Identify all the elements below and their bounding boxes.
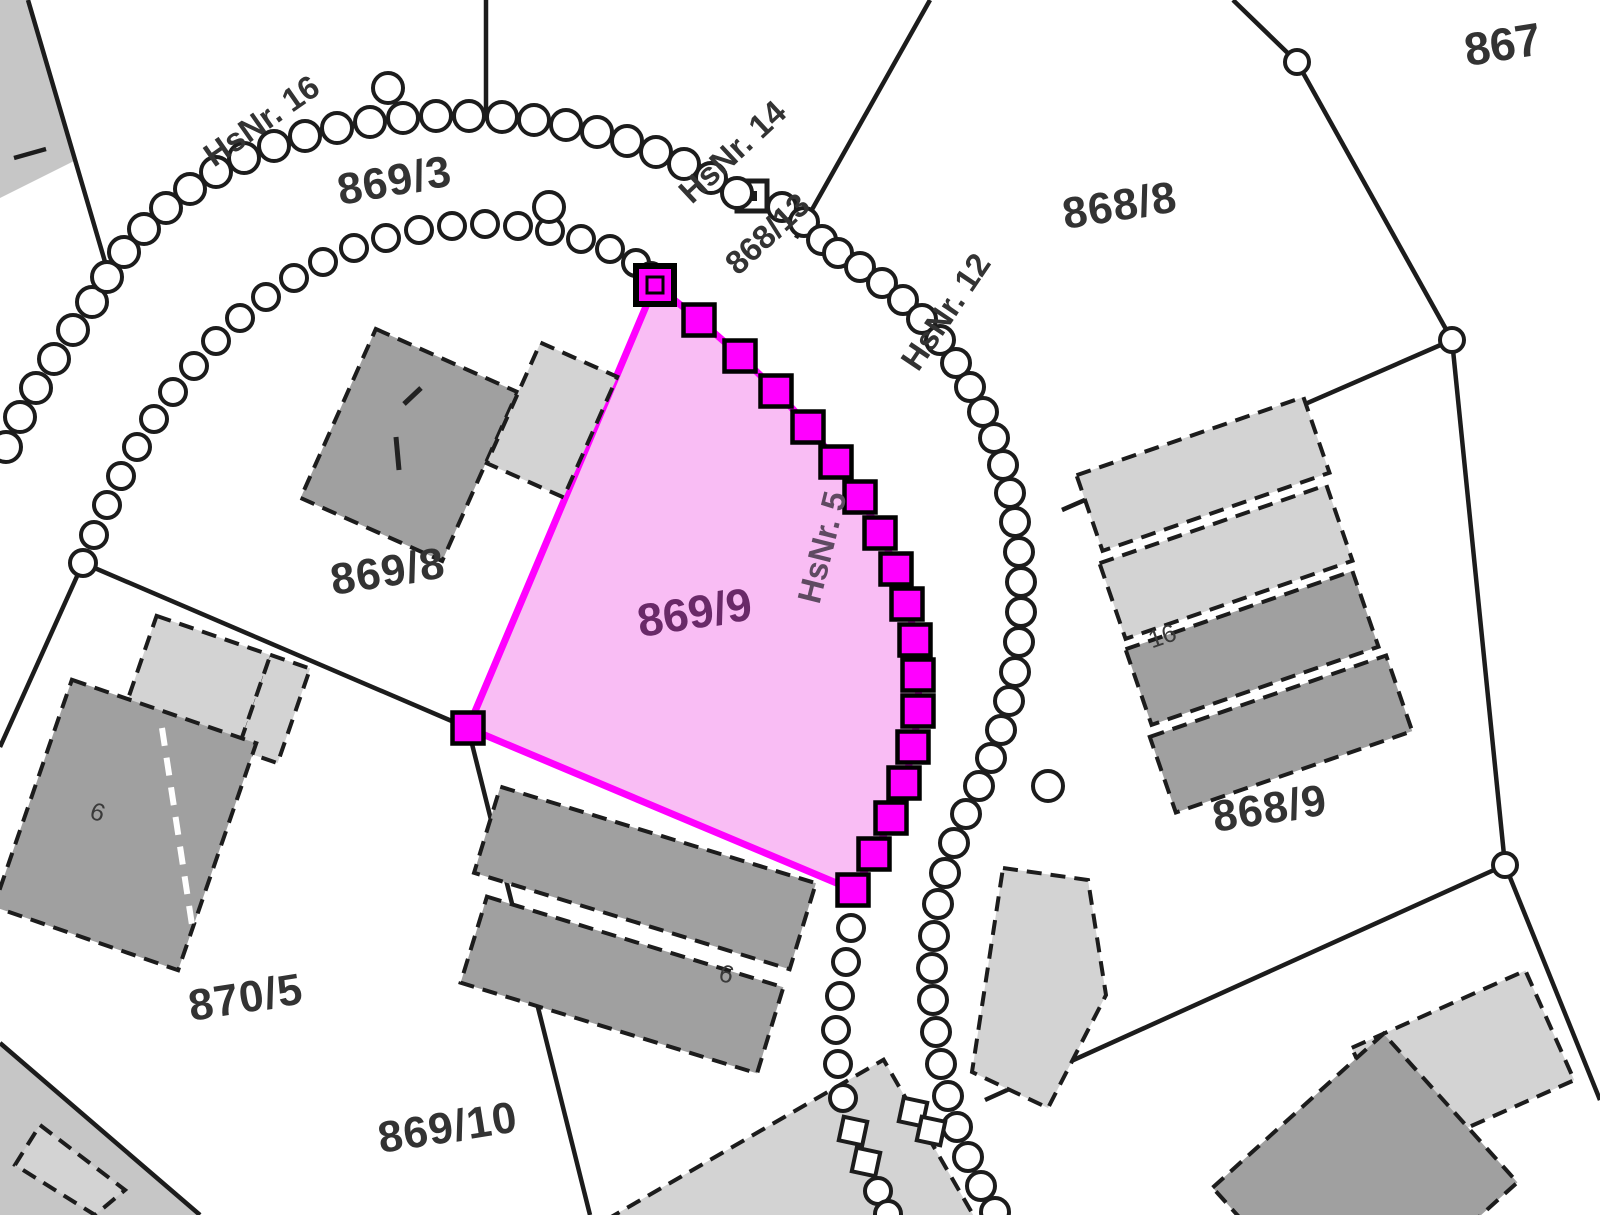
boundary-point-circle [373, 73, 403, 103]
boundary-point-circle [1033, 771, 1063, 801]
parcel-vertex-handle[interactable] [821, 447, 852, 478]
boundary-point-circle [875, 1201, 901, 1215]
corner-parcels [0, 0, 200, 1215]
boundary-point-circle [439, 213, 465, 239]
boundary-point-circle [487, 102, 517, 132]
boundary-point-circle [920, 922, 948, 950]
boundary-point-circle [838, 915, 864, 941]
boundary-point-square [852, 1148, 880, 1176]
parcel-vertex-handle[interactable] [892, 589, 923, 620]
boundary-point-circle [918, 954, 946, 982]
parcel-boundary-line [1297, 62, 1452, 340]
boundary-point-circle [70, 550, 96, 576]
parcel-vertex-handle[interactable] [838, 875, 869, 906]
boundary-point-circle [934, 1082, 962, 1110]
label-parcel-869-10: 869/10 [374, 1092, 521, 1162]
boundary-point-circle [833, 949, 859, 975]
parcel-vertex-handle[interactable] [761, 376, 792, 407]
boundary-point-circle [582, 117, 612, 147]
label-parcel-869-3: 869/3 [334, 147, 456, 215]
boundary-point-circle [519, 105, 549, 135]
boundary-point-circle [987, 716, 1015, 744]
label-parcel-870-5: 870/5 [185, 964, 306, 1030]
boundary-point-circle [980, 424, 1008, 452]
boundary-vertex-circle [1493, 853, 1517, 877]
boundary-point-circle [551, 110, 581, 140]
boundary-point-circle [981, 1198, 1009, 1215]
boundary-point-square [839, 1117, 867, 1145]
boundary-point-circle [931, 859, 959, 887]
boundary-point-circle [253, 284, 279, 310]
boundary-point-circle [406, 217, 432, 243]
boundary-point-circle [827, 983, 853, 1009]
boundary-point-circle [0, 432, 21, 462]
boundary-point-circle [722, 178, 752, 208]
label-parcel-868-8: 868/8 [1059, 172, 1180, 238]
map-viewport[interactable]: 869/3 867 868/8 868/13 869/8 869/9 868/9… [0, 0, 1600, 1215]
boundary-point-circle [919, 986, 947, 1014]
parcel-vertex-handle[interactable] [859, 839, 890, 870]
boundary-point-circle [1005, 628, 1033, 656]
parcel-boundary-line [1452, 340, 1505, 865]
parcel-vertex-handle[interactable] [903, 696, 934, 727]
parcel-vertex-handle[interactable] [725, 341, 756, 372]
label-parcel-869-8: 869/8 [327, 538, 448, 604]
boundary-point-circle [924, 890, 952, 918]
parcel-vertex-handle[interactable] [889, 768, 920, 799]
boundary-point-circle [597, 236, 623, 262]
boundary-point-circle [1005, 538, 1033, 566]
boundary-point-circle [108, 463, 134, 489]
parcel-vertex-handle-selected[interactable] [636, 266, 674, 304]
parcel-vertex-handle[interactable] [876, 803, 907, 834]
boundary-point-circle [58, 315, 88, 345]
boundary-point-circle [1007, 598, 1035, 626]
boundary-point-square [917, 1117, 945, 1145]
boundary-point-circle [989, 451, 1017, 479]
building [972, 868, 1106, 1108]
boundary-point-circle [830, 1085, 856, 1111]
boundary-point-circle [181, 353, 207, 379]
boundary-point-circle [825, 1051, 851, 1077]
parcel-vertex-handle[interactable] [865, 518, 896, 549]
parcel-vertex-handle[interactable] [903, 660, 934, 691]
boundary-point-circle [1001, 508, 1029, 536]
boundary-point-circle [94, 492, 120, 518]
boundary-point-circle [454, 101, 484, 131]
boundary-point-circle [965, 772, 993, 800]
boundary-point-circle [203, 328, 229, 354]
boundary-point-circle [1007, 568, 1035, 596]
cadastral-map-canvas[interactable]: 869/3 867 868/8 868/13 869/8 869/9 868/9… [0, 0, 1600, 1215]
boundary-point-circle [281, 265, 307, 291]
boundary-point-circle [355, 107, 385, 137]
boundary-point-circle [505, 213, 531, 239]
boundary-point-circle [995, 687, 1023, 715]
boundary-point-circle [1001, 658, 1029, 686]
boundary-vertex-circle [1285, 50, 1309, 74]
boundary-point-circle [124, 434, 150, 460]
parcel-vertex-handle[interactable] [881, 554, 912, 585]
boundary-point-circle [922, 1018, 950, 1046]
parcel-vertex-handle[interactable] [898, 732, 929, 763]
boundary-point-circle [21, 373, 51, 403]
boundary-point-circle [996, 479, 1024, 507]
boundary-point-circle [141, 406, 167, 432]
boundary-point-circle [39, 344, 69, 374]
building [301, 329, 518, 561]
boundary-point-circle [388, 103, 418, 133]
boundary-point-circle [641, 137, 671, 167]
boundary-vertex-circle [1440, 328, 1464, 352]
boundary-point-circle [954, 1143, 982, 1171]
boundary-point-circle [290, 121, 320, 151]
boundary-point-circle [940, 829, 968, 857]
boundary-point-circle [5, 402, 35, 432]
boundary-point-circle [421, 101, 451, 131]
boundary-point-circle [322, 113, 352, 143]
boundary-point-circle [310, 249, 336, 275]
boundary-point-circle [823, 1017, 849, 1043]
parcel-vertex-handle[interactable] [684, 305, 715, 336]
boundary-point-circle [967, 1172, 995, 1200]
boundary-point-circle [160, 379, 186, 405]
boundary-point-circle [952, 800, 980, 828]
boundary-point-circle [927, 1050, 955, 1078]
boundary-point-circle [534, 192, 564, 222]
boundary-point-circle [472, 211, 498, 237]
boundary-point-circle [977, 744, 1005, 772]
parcel-boundary-line [796, 0, 930, 238]
boundary-point-circle [227, 305, 253, 331]
boundary-point-circle [943, 1113, 971, 1141]
boundary-point-circle [568, 226, 594, 252]
boundary-point-circle [612, 126, 642, 156]
label-parcel-867: 867 [1461, 13, 1545, 76]
boundary-point-circle [969, 398, 997, 426]
parcel-vertex-handle[interactable] [453, 713, 484, 744]
parcel-vertex-handle[interactable] [793, 412, 824, 443]
parcel-vertex-handle[interactable] [900, 625, 931, 656]
boundary-point-circle [81, 522, 107, 548]
boundary-point-circle [341, 235, 367, 261]
house-number-mark [396, 437, 399, 470]
boundary-point-circle [373, 225, 399, 251]
